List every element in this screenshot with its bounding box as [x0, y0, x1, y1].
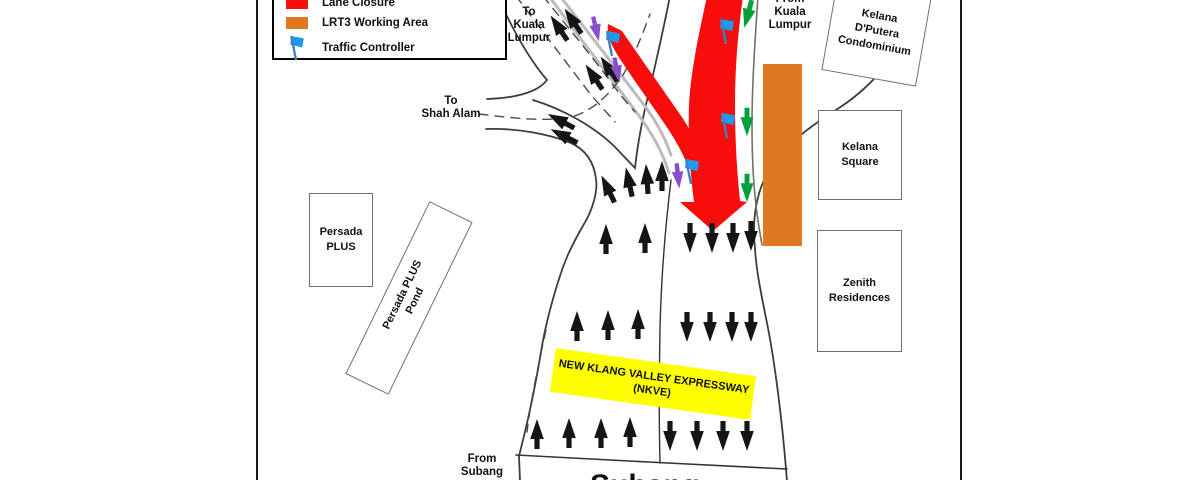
label-text: To: [412, 95, 490, 108]
building-label: Zenith: [843, 276, 876, 291]
label-from-subang: From Subang: [450, 453, 514, 479]
working-area-swatch-icon: [286, 17, 308, 29]
road-network-canvas: [0, 0, 1200, 480]
label-bottom-destination: Subang: [565, 469, 725, 480]
lrt3-working-area: [763, 64, 802, 246]
label-text: Shah Alam: [571, 0, 630, 3]
road-edge-ramp-inner: [752, 0, 762, 245]
legend-label: Traffic Controller: [322, 42, 415, 54]
building-label: Square: [841, 155, 878, 170]
building-zenith-residences: Zenith Residences: [817, 230, 902, 352]
label-top-shah-alam: Shah Alam: [556, 0, 646, 4]
building-label: Persada: [320, 225, 363, 240]
traffic-controller-flag-icon: [286, 35, 308, 61]
label-to-shah-alam: To Shah Alam: [412, 95, 490, 121]
road-edge-nkve-left: [486, 129, 596, 480]
legend-box: Lane Closure LRT3 Working Area Traffic C…: [272, 0, 507, 60]
traffic-management-plan: Persada PLUS Persada PLUS Pond Kelana D'…: [0, 0, 1200, 480]
legend-item-lane-closure: Lane Closure: [286, 0, 395, 9]
label-text: Subang: [450, 466, 514, 479]
label-text: To: [498, 6, 560, 19]
building-label: Residences: [829, 291, 890, 306]
road-center-line: [659, 180, 671, 463]
legend-item-working-area: LRT3 Working Area: [286, 17, 428, 29]
label-text: Kuala: [760, 6, 820, 19]
label-text: Shah Alam: [412, 108, 490, 121]
label-to-kuala-lumpur: To Kuala Lumpur: [498, 6, 560, 45]
label-from-kuala-lumpur: From Kuala Lumpur: [760, 0, 820, 32]
label-text: Lumpur: [760, 19, 820, 32]
label-text: Lumpur: [498, 32, 560, 45]
legend-item-traffic-controller: Traffic Controller: [286, 35, 415, 61]
legend-label: LRT3 Working Area: [322, 17, 428, 29]
building-kelana-square: Kelana Square: [818, 110, 902, 200]
label-text: Kuala: [498, 19, 560, 32]
lane-closure-swatch-icon: [286, 0, 308, 9]
building-persada-plus: Persada PLUS: [309, 193, 373, 287]
traffic-arrows-green: [738, 0, 758, 202]
legend-label: Lane Closure: [322, 0, 395, 9]
lane-closure-band-main: [680, 0, 747, 231]
building-label: PLUS: [326, 240, 355, 255]
road-section-boundary: [516, 455, 787, 469]
label-text: Subang: [590, 469, 700, 480]
building-label: Kelana: [842, 140, 878, 155]
label-text: From: [450, 453, 514, 466]
